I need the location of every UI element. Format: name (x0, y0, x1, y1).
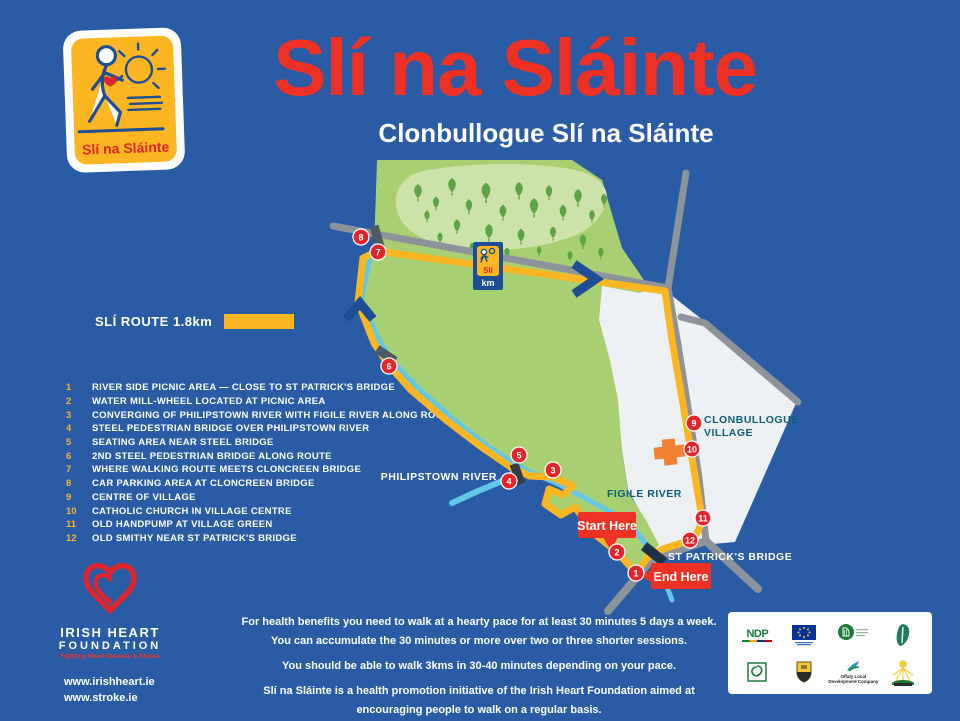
advice-line: You should be able to walk 3kms in 30-40… (240, 659, 718, 674)
svg-text:2: 2 (614, 548, 619, 558)
ihf-url-irishheart: www.irishheart.ie (64, 674, 170, 690)
map-marker-9: 9 (686, 415, 702, 431)
village-label-line2: VILLAGE (704, 427, 753, 439)
north-road (668, 173, 686, 288)
government-dept-logo (836, 623, 870, 647)
svg-text:7: 7 (375, 248, 380, 258)
km-sign-km-label: km (481, 278, 494, 288)
map-marker-8: 8 (353, 229, 369, 245)
coat-of-arms-icon (795, 660, 813, 684)
km-sign-sli-label: Slí (483, 266, 494, 275)
southeast-road (706, 541, 758, 589)
svg-text:9: 9 (691, 419, 696, 429)
svg-text:12: 12 (685, 536, 695, 546)
ireland-silhouette-icon (895, 623, 911, 647)
map-marker-4: 4 (501, 473, 517, 489)
figile-river-label: FIGILE RIVER (607, 488, 682, 500)
ihf-heart-icon (80, 560, 140, 618)
philipstown-river-label: PHILIPSTOWN RIVER (381, 471, 497, 483)
start-here-label: Start Here (577, 519, 637, 533)
oldc-leaf-icon (845, 659, 861, 673)
svg-text:5: 5 (516, 451, 521, 461)
advice-line: For health benefits you need to walk at … (240, 615, 718, 630)
map-marker-3: 3 (545, 462, 561, 478)
health-advice-text: For health benefits you need to walk at … (240, 615, 718, 721)
community-sun-icon (890, 657, 916, 687)
ndp-logo: NDP (742, 628, 772, 642)
map-marker-5: 5 (511, 447, 527, 463)
svg-text:10: 10 (687, 445, 697, 455)
svg-text:8: 8 (358, 233, 363, 243)
ihf-name-line2: FOUNDATION (50, 640, 170, 652)
eu-flag-logo (791, 624, 817, 646)
offaly-coat-of-arms-logo (795, 660, 813, 684)
map-marker-1: 1 (628, 565, 644, 581)
irish-heart-foundation-logo: IRISH HEART FOUNDATION Fighting Heart Di… (50, 560, 170, 706)
ihf-tagline: Fighting Heart Disease & Stroke (50, 653, 170, 660)
svg-text:3: 3 (550, 466, 555, 476)
svg-text:1: 1 (633, 569, 638, 579)
ireland-map-logo (895, 623, 911, 647)
ndp-logo-bar (742, 640, 772, 642)
end-here-label: End Here (654, 570, 709, 584)
map-marker-12: 12 (682, 532, 698, 548)
village-label-line1: CLONBULLOGUE (704, 414, 799, 426)
advice-line: You can accumulate the 30 minutes or mor… (240, 634, 718, 649)
offaly-ldc-logo: Offaly Local Development Company (827, 659, 879, 684)
leader-icon (747, 662, 767, 682)
ihf-url-stroke: www.stroke.ie (64, 690, 170, 706)
svg-text:11: 11 (698, 514, 708, 524)
eu-flag-icon (791, 624, 817, 646)
advice-line: Slí na Sláinte is a health promotion ini… (240, 684, 718, 699)
map-marker-11: 11 (695, 510, 711, 526)
map-marker-10: 10 (684, 441, 700, 457)
govt-harp-icon (836, 623, 870, 647)
offaly-ldc-text: Offaly Local Development Company (827, 674, 879, 684)
km-signpost: Slí km (473, 242, 503, 290)
ndp-logo-text: NDP (746, 628, 768, 640)
advice-line: encouraging people to walk on a regular … (240, 703, 718, 718)
map-marker-7: 7 (370, 244, 386, 260)
st-patricks-bridge-label: ST PATRICK'S BRIDGE (668, 551, 792, 563)
sli-na-slainte-poster: Slí na Sláinte Slí na Sláinte Clonbullog… (0, 0, 960, 721)
svg-text:6: 6 (386, 362, 391, 372)
map-marker-2: 2 (609, 544, 625, 560)
map-marker-6: 6 (381, 358, 397, 374)
svg-text:4: 4 (506, 477, 511, 487)
leader-logo (747, 662, 767, 682)
end-here-callout: End Here (640, 563, 711, 589)
sun-community-logo (890, 657, 916, 687)
ihf-name-line1: IRISH HEART (50, 625, 170, 640)
partner-logos-panel: NDP (728, 612, 932, 694)
